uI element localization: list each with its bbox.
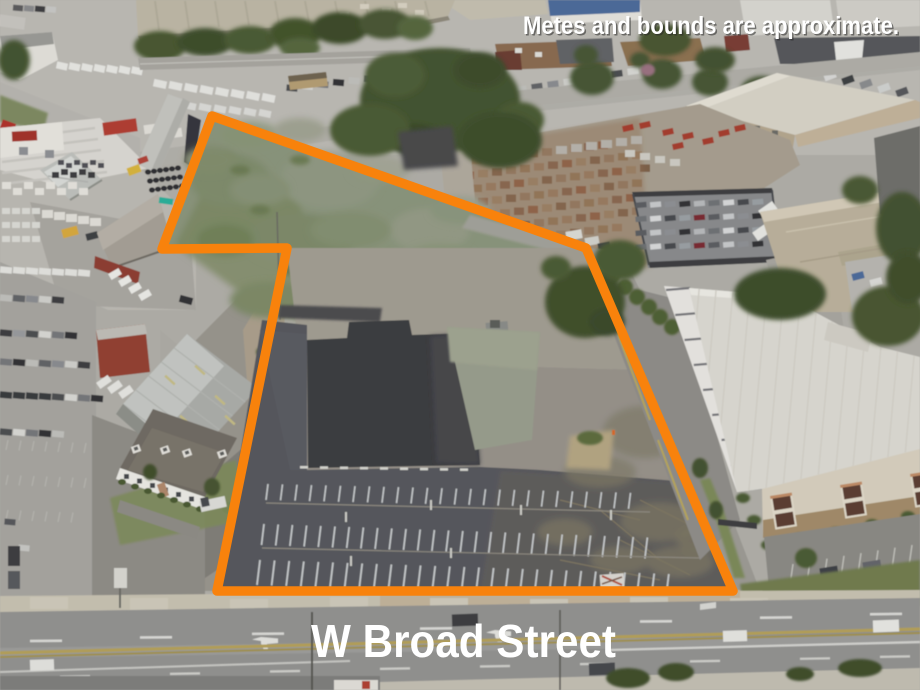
svg-text:Metes and bounds are approxima: Metes and bounds are approximate. <box>523 12 899 40</box>
svg-text:W Broad Street: W Broad Street <box>311 615 616 667</box>
